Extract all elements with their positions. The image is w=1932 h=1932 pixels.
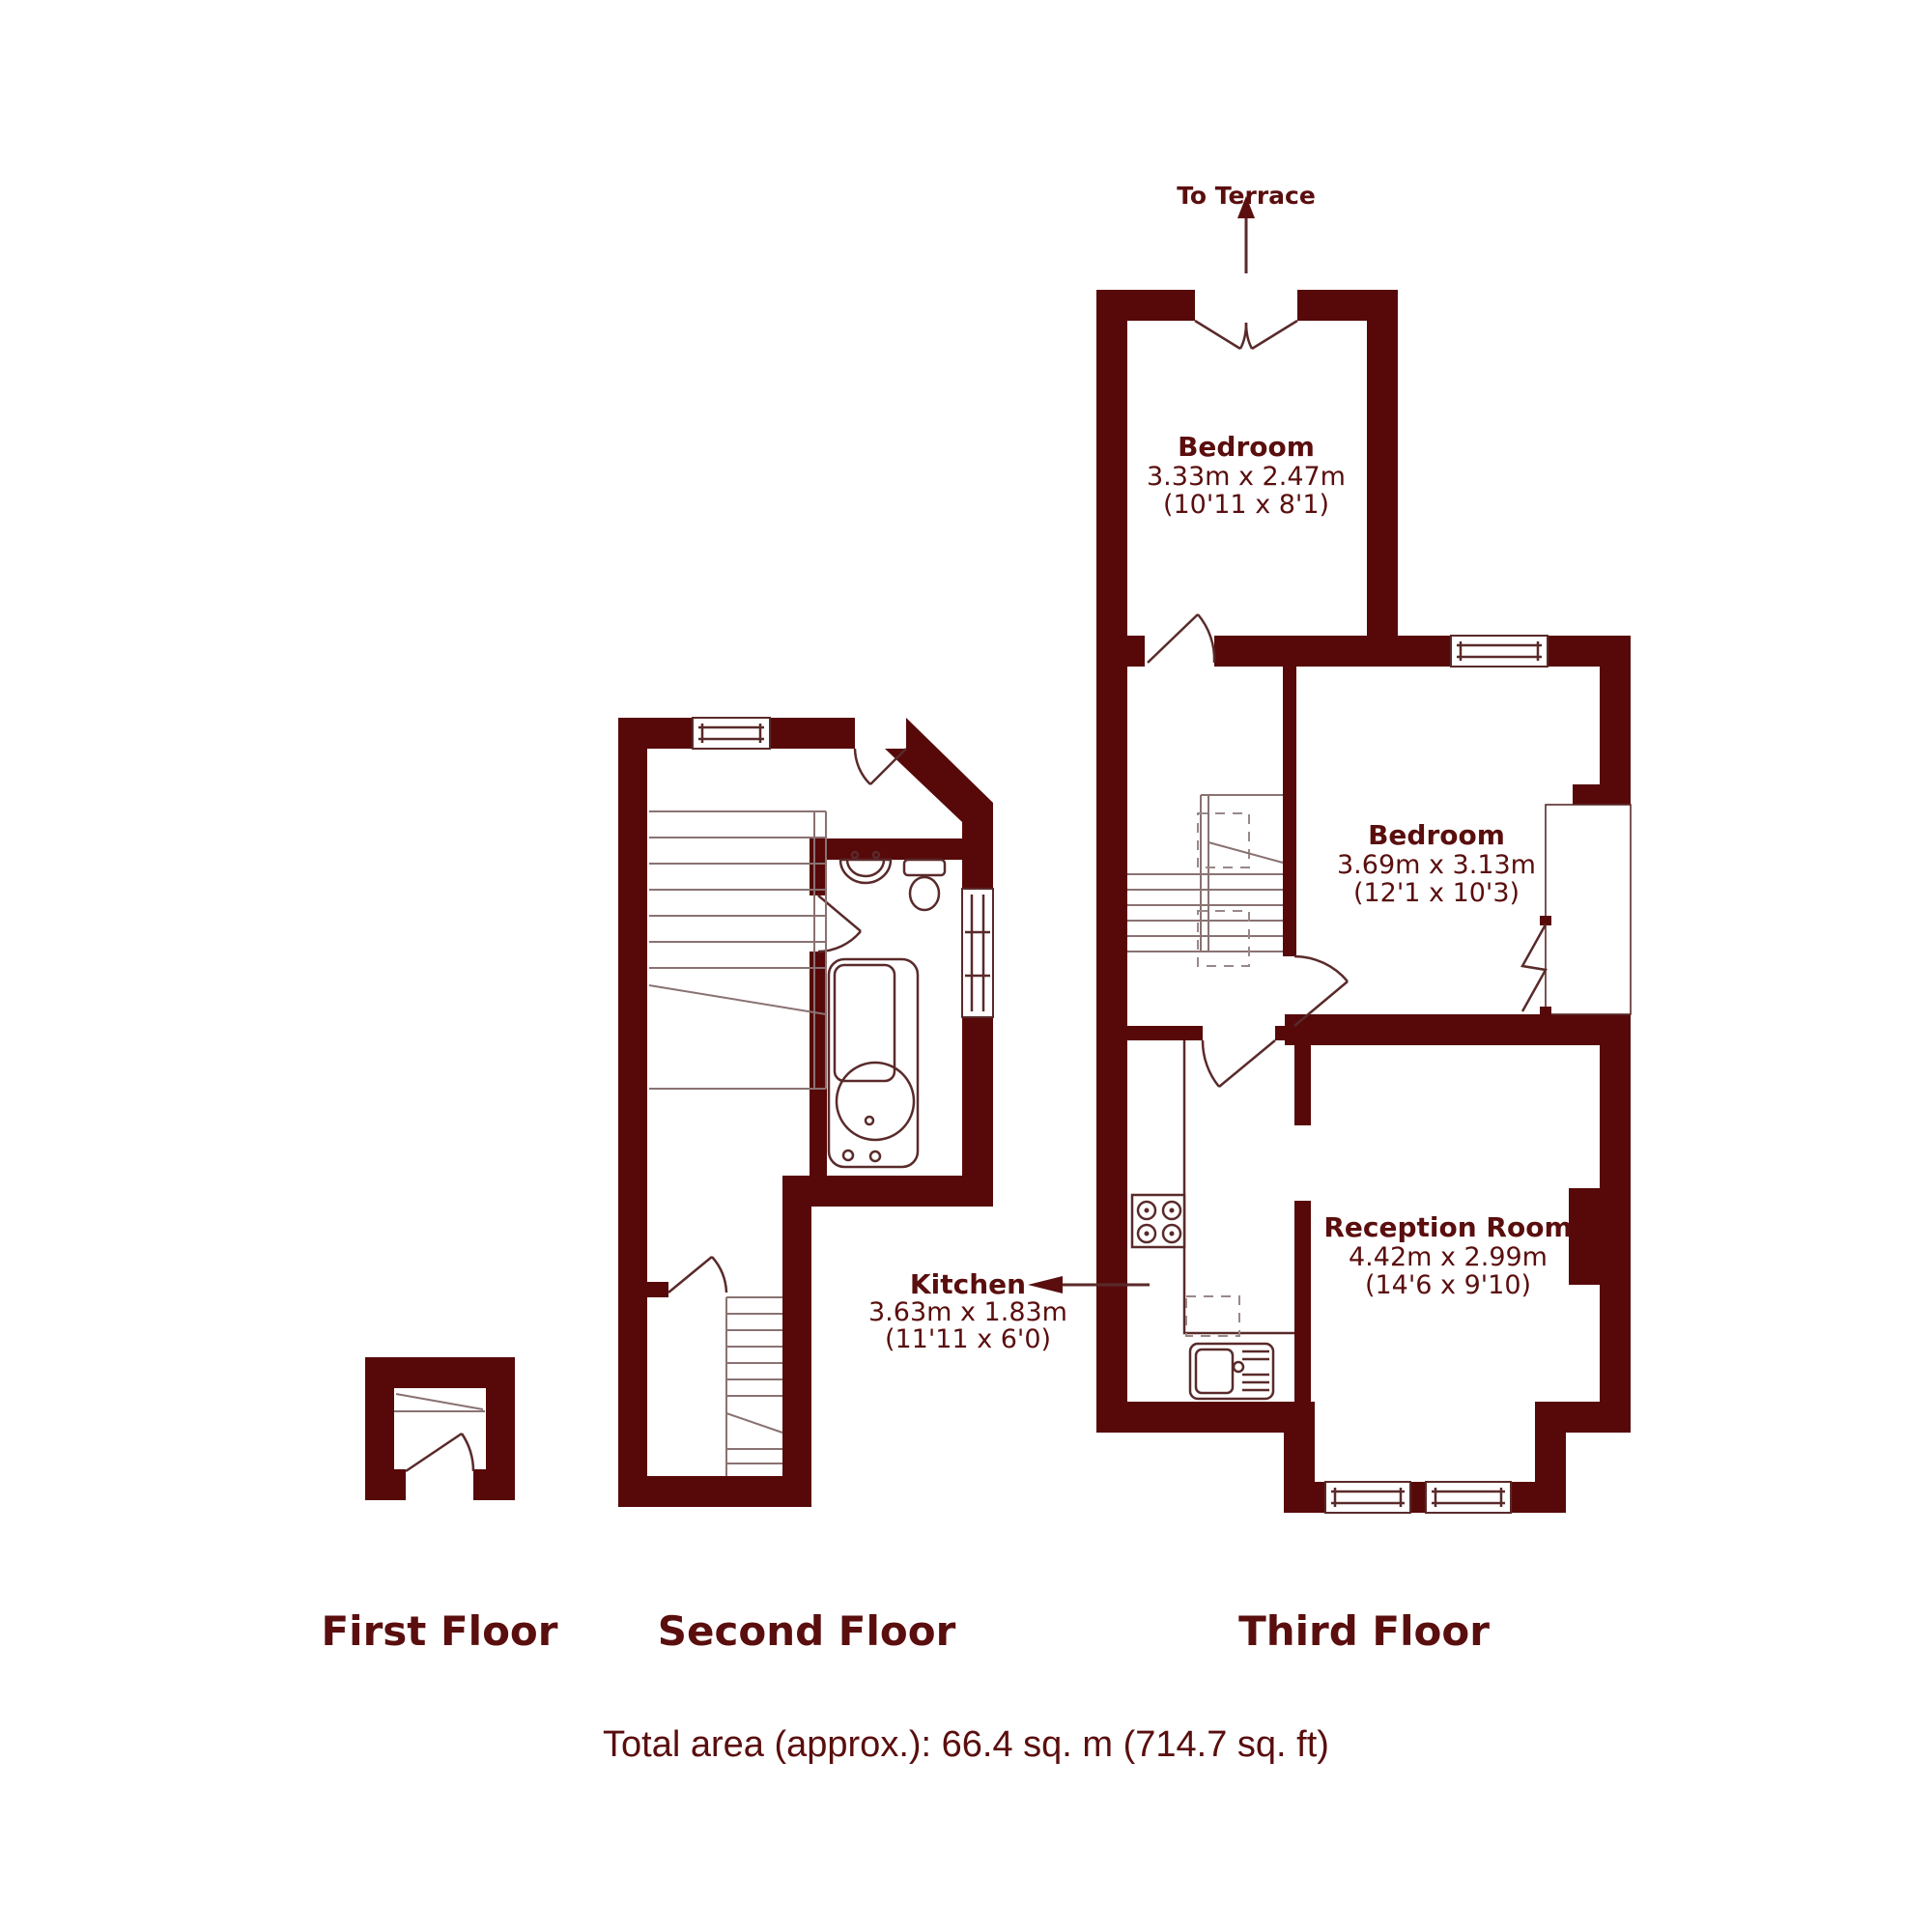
staircase [649, 811, 826, 1089]
staircase [726, 1297, 782, 1476]
second-floor-caption: Second Floor [658, 1607, 956, 1655]
closet [1522, 805, 1631, 1016]
bedroom1-label: Bedroom 3.33m x 2.47m (10'11 x 8'1) [1147, 431, 1346, 520]
toilet-icon [904, 860, 945, 910]
svg-text:4.42m x 2.99m: 4.42m x 2.99m [1349, 1242, 1548, 1272]
third-floor-caption: Third Floor [1238, 1607, 1490, 1655]
svg-text:(10'11 x 8'1): (10'11 x 8'1) [1163, 490, 1329, 520]
bathroom-fixtures [829, 852, 945, 1167]
to-terrace-annotation: To Terrace [1177, 182, 1316, 273]
window-icon [1426, 1482, 1511, 1513]
kitchen-counter [1184, 1040, 1294, 1333]
window-icon [1325, 1482, 1410, 1513]
total-area-label: Total area (approx.): 66.4 sq. m (714.7 … [603, 1724, 1329, 1765]
bathtub-icon [829, 959, 918, 1167]
staircase [1127, 795, 1283, 966]
door-icon [1148, 614, 1214, 663]
svg-text:(11'11 x 6'0): (11'11 x 6'0) [885, 1324, 1051, 1354]
floorplan-drawing: To Terrace Bedroom 3.33m x 2.47m (10'11 … [0, 0, 1932, 1932]
door-icon [668, 1257, 726, 1293]
door-icon [1203, 1040, 1275, 1087]
svg-text:3.33m x 2.47m: 3.33m x 2.47m [1147, 462, 1346, 492]
bedroom2-label: Bedroom 3.69m x 3.13m (12'1 x 10'3) [1337, 819, 1536, 908]
bifold-door-icon [1522, 924, 1546, 1011]
svg-text:Kitchen: Kitchen [910, 1268, 1026, 1300]
hob-icon [1132, 1195, 1184, 1247]
svg-text:3.69m x 3.13m: 3.69m x 3.13m [1337, 850, 1536, 880]
reception-label: Reception Room 4.42m x 2.99m (14'6 x 9'1… [1323, 1211, 1572, 1300]
svg-text:(14'6 x 9'10): (14'6 x 9'10) [1365, 1270, 1531, 1300]
first-floor-walls [365, 1357, 515, 1500]
second-floor-plan [618, 718, 993, 1507]
first-floor-caption: First Floor [321, 1607, 557, 1655]
window-icon [1451, 636, 1548, 667]
floor-captions: First Floor Second Floor Third Floor [321, 1607, 1490, 1655]
appliance-dashed [1186, 1296, 1239, 1336]
window-icon [693, 718, 770, 749]
third-floor-windows [1325, 636, 1548, 1513]
terrace-door-icon [1195, 321, 1297, 349]
window-icon [962, 889, 993, 1017]
sink-icon [1190, 1344, 1273, 1399]
staircase [394, 1394, 485, 1411]
floorplan-page: To Terrace Bedroom 3.33m x 2.47m (10'11 … [0, 0, 1932, 1932]
arrow-left-icon [1028, 1276, 1063, 1293]
door-icon [406, 1434, 473, 1471]
svg-text:(12'1 x 10'3): (12'1 x 10'3) [1353, 878, 1520, 908]
svg-text:Reception Room: Reception Room [1323, 1211, 1572, 1243]
kitchen-fixtures [1132, 1040, 1294, 1399]
chamfer-wall [885, 718, 993, 838]
first-floor-plan [365, 1357, 515, 1500]
second-floor-walls [618, 718, 993, 1507]
svg-text:3.63m x 1.83m: 3.63m x 1.83m [868, 1297, 1067, 1327]
svg-text:Bedroom: Bedroom [1368, 819, 1505, 851]
door-icon [818, 895, 861, 952]
svg-text:Bedroom: Bedroom [1178, 431, 1315, 463]
